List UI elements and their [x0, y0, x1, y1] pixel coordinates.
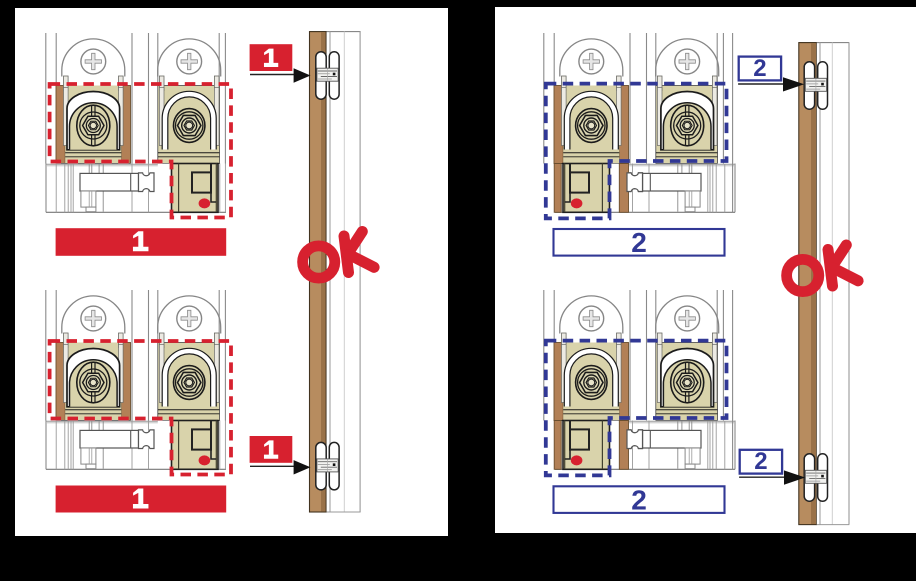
- svg-text:2: 2: [631, 485, 647, 516]
- svg-text:2: 2: [631, 227, 647, 258]
